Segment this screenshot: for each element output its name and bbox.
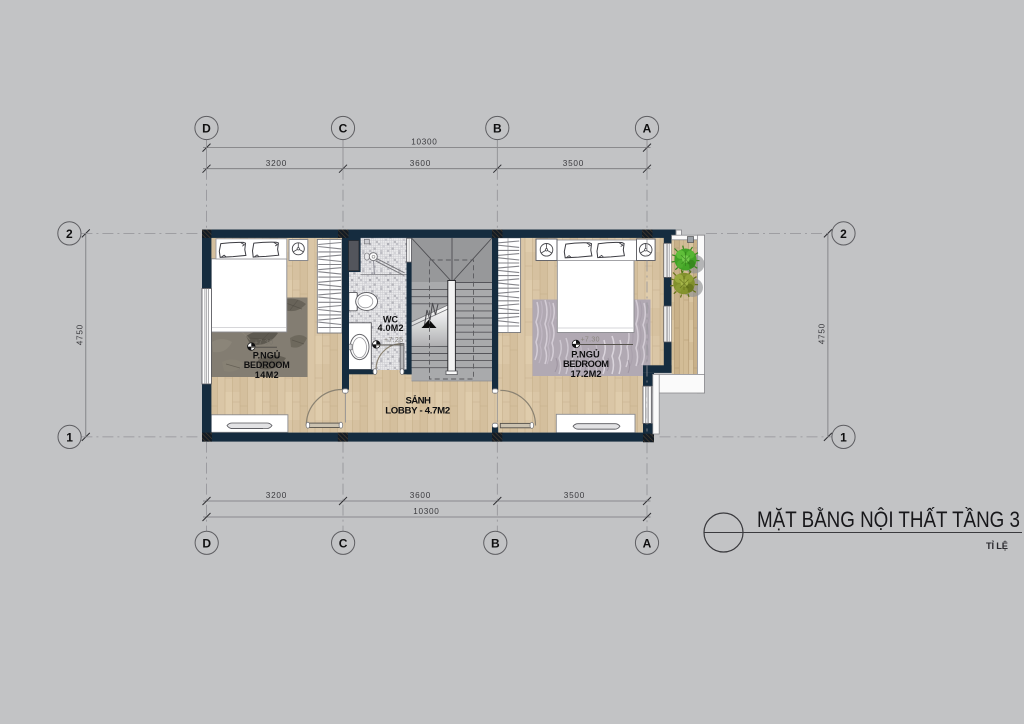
svg-text:C: C: [339, 536, 348, 550]
svg-text:D: D: [202, 536, 211, 550]
svg-text:10300: 10300: [411, 138, 437, 147]
svg-text:3600: 3600: [410, 491, 431, 500]
svg-text:3200: 3200: [266, 491, 287, 500]
svg-text:2: 2: [840, 227, 847, 241]
svg-text:+7.30: +7.30: [254, 339, 273, 346]
svg-text:17.2M2: 17.2M2: [571, 369, 602, 379]
svg-text:4750: 4750: [76, 324, 85, 345]
svg-text:A: A: [643, 122, 652, 136]
svg-text:A: A: [643, 536, 652, 550]
svg-text:+7.30: +7.30: [581, 337, 600, 344]
svg-text:C: C: [339, 122, 348, 136]
svg-text:10300: 10300: [413, 507, 439, 516]
svg-text:D: D: [202, 122, 211, 136]
svg-text:P.NGỦ: P.NGỦ: [253, 350, 281, 361]
svg-text:P.NGỦ: P.NGỦ: [571, 349, 600, 360]
svg-text:B: B: [493, 122, 502, 136]
svg-text:1: 1: [840, 431, 847, 445]
svg-text:BEDROOM: BEDROOM: [563, 359, 609, 369]
svg-text:1: 1: [66, 431, 73, 445]
svg-text:LOBBY - 4.7M2: LOBBY - 4.7M2: [385, 405, 450, 416]
svg-text:MẶT BẰNG NỘI THẤT TẦNG 3: MẶT BẰNG NỘI THẤT TẦNG 3: [757, 507, 1020, 532]
svg-text:2: 2: [66, 227, 73, 241]
svg-text:14M2: 14M2: [255, 370, 279, 380]
svg-text:4750: 4750: [818, 323, 827, 344]
svg-text:3200: 3200: [266, 159, 287, 168]
svg-text:3500: 3500: [563, 159, 584, 168]
svg-text:B: B: [491, 536, 500, 550]
svg-text:4.0M2: 4.0M2: [378, 323, 404, 333]
svg-text:3600: 3600: [410, 159, 431, 168]
svg-text:BEDROOM: BEDROOM: [244, 360, 290, 370]
svg-text:TỈ LỆ: TỈ LỆ: [986, 540, 1008, 551]
svg-text:+7.25: +7.25: [384, 337, 403, 344]
svg-text:3500: 3500: [564, 491, 585, 500]
